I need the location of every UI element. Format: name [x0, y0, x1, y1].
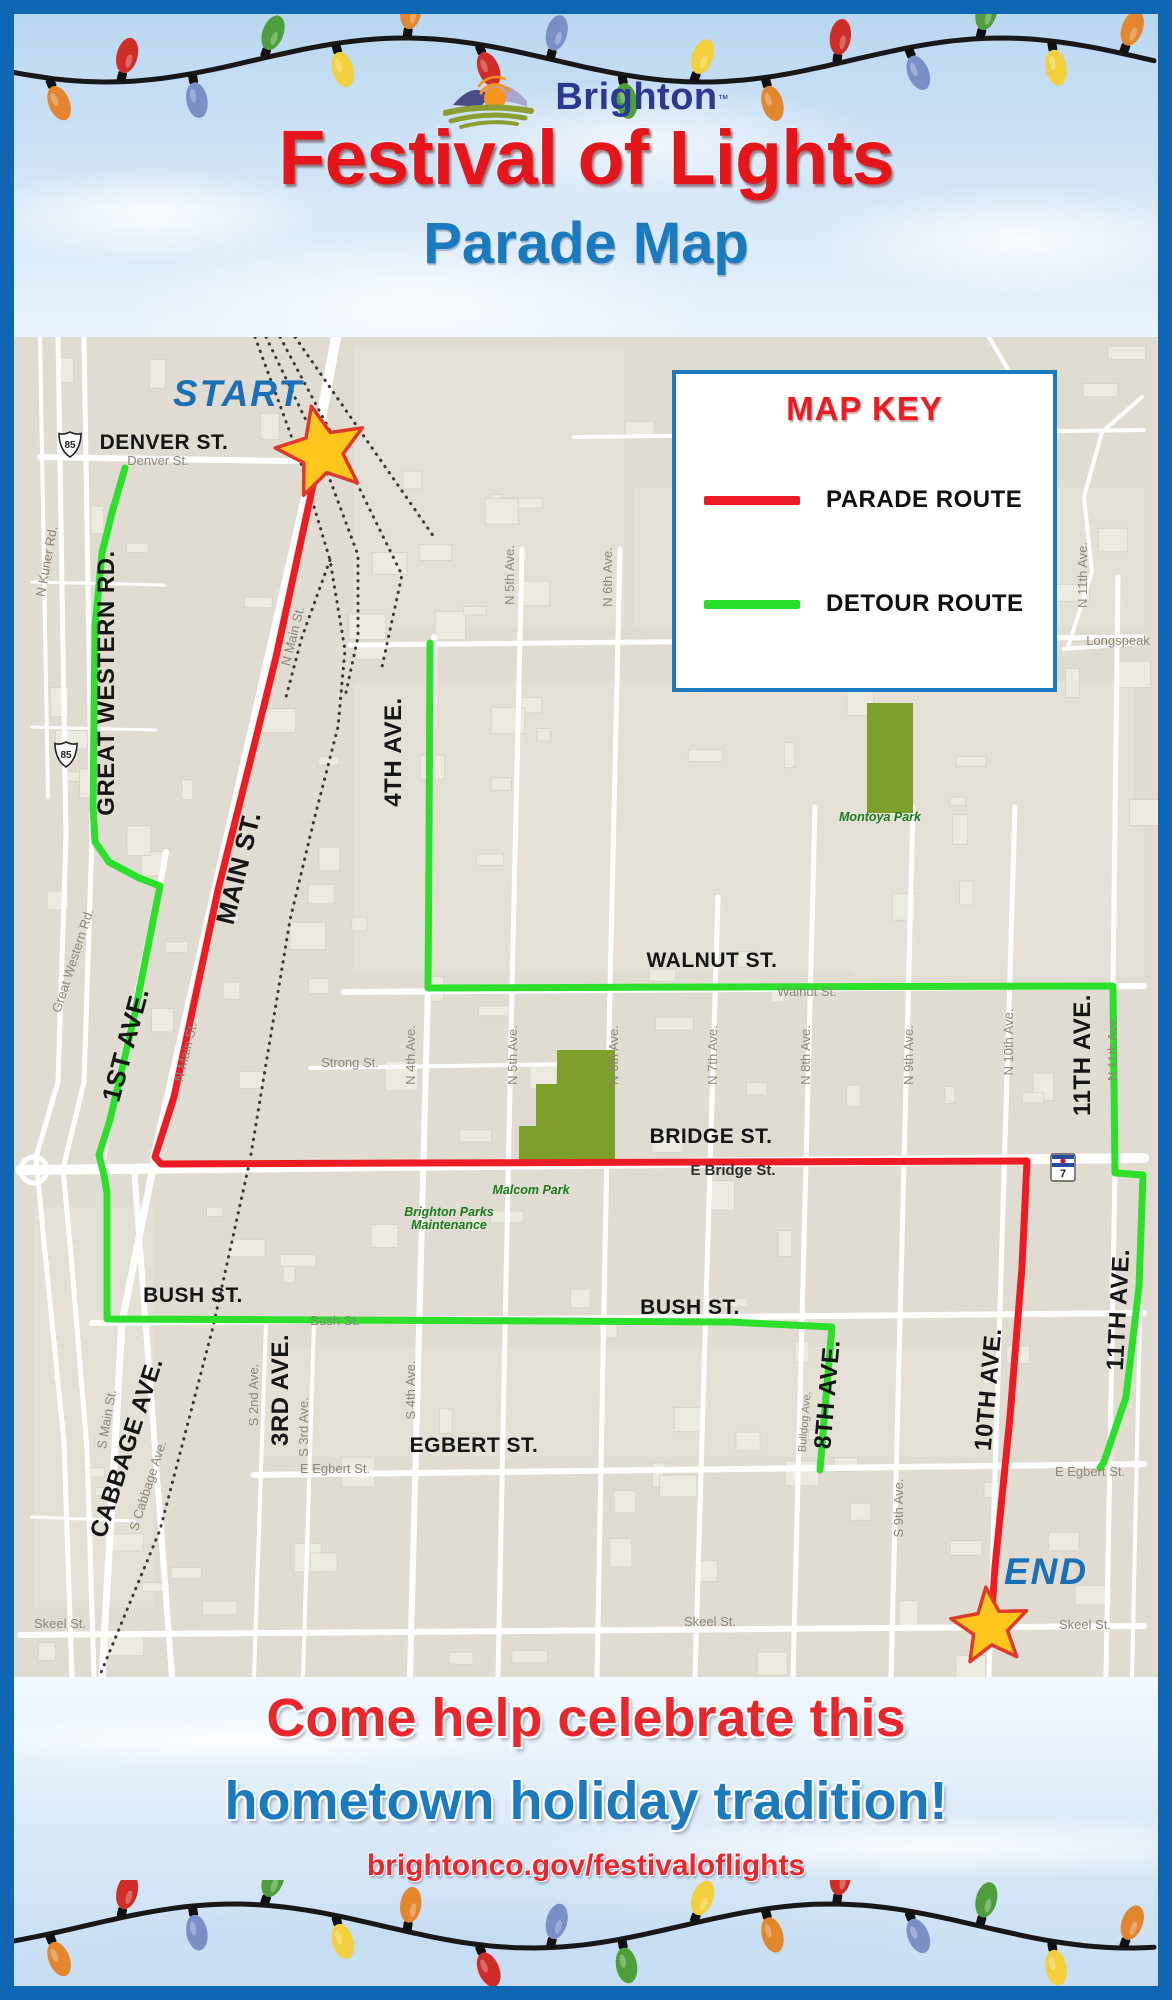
building	[950, 1541, 982, 1555]
building	[150, 360, 166, 389]
building	[625, 422, 654, 435]
street-label-small: N 5th Ave.	[505, 1025, 520, 1085]
building	[435, 611, 465, 640]
building	[459, 1130, 491, 1142]
brighton-logo-icon	[443, 65, 543, 129]
building	[953, 815, 968, 845]
key-swatch	[704, 600, 800, 609]
building	[126, 543, 148, 552]
map-key-title: MAP KEY	[676, 390, 1053, 428]
building	[464, 606, 486, 615]
map-key-rows: PARADE ROUTEDETOUR ROUTE	[676, 486, 1053, 618]
brand-trademark: ™	[718, 93, 729, 105]
building	[403, 471, 422, 489]
building	[38, 1643, 55, 1661]
building	[700, 1560, 717, 1581]
building	[614, 1491, 636, 1513]
building	[492, 778, 512, 791]
street-label-small: N 11th Ave.	[1105, 1015, 1120, 1081]
street-label-small: Walnut St.	[777, 984, 836, 999]
street-label-bold: BUSH ST.	[640, 1296, 740, 1319]
building	[1083, 384, 1118, 397]
building	[674, 1408, 703, 1432]
building	[207, 1207, 223, 1216]
building	[1108, 346, 1145, 359]
street-label-small: E Egbert St.	[1055, 1464, 1125, 1479]
street-label-small: N 9th Ave.	[901, 1025, 916, 1085]
building	[239, 1072, 263, 1089]
park-label: Brighton Parks	[404, 1205, 494, 1219]
building	[1115, 661, 1151, 687]
svg-text:85: 85	[60, 750, 72, 761]
building	[660, 1475, 697, 1497]
building	[308, 884, 334, 904]
building	[171, 1568, 202, 1579]
park-label: Montoya Park	[839, 810, 922, 824]
building	[778, 1231, 791, 1257]
building	[537, 729, 551, 741]
building	[106, 1636, 143, 1656]
building	[784, 742, 794, 767]
street-label-bold: DENVER ST.	[100, 431, 229, 454]
building	[478, 1006, 509, 1016]
co-7-shield-icon: 7	[1051, 1154, 1075, 1181]
key-label: PARADE ROUTE	[826, 486, 1022, 514]
street-label-small: Skeel St.	[684, 1614, 736, 1629]
street-label-small: S 4th Ave.	[403, 1360, 418, 1419]
building	[485, 499, 518, 524]
street-label-bold: BRIDGE ST.	[650, 1125, 773, 1148]
street-label-bold: BUSH ST.	[143, 1284, 243, 1307]
building	[152, 1009, 174, 1033]
building	[1022, 1092, 1043, 1103]
building	[419, 544, 452, 560]
building	[1098, 528, 1127, 552]
building	[111, 1534, 143, 1551]
street-label-small: S 2nd Ave.	[246, 1364, 261, 1427]
building	[945, 1087, 955, 1104]
street-label-small: N 6th Ave.	[600, 547, 615, 607]
street-label-small: Denver St.	[127, 453, 188, 468]
building	[290, 922, 325, 949]
street-label-small: Skeel St.	[1059, 1617, 1111, 1632]
park-label: Maintenance	[411, 1218, 487, 1232]
street-label-small: N 6th Ave.	[606, 1025, 621, 1085]
street-label-small: Strong St.	[321, 1055, 379, 1070]
building	[1066, 669, 1080, 698]
street-label-small: N 8th Ave.	[798, 1025, 813, 1085]
building	[610, 1539, 632, 1567]
building	[950, 797, 966, 806]
map-key-item-parade-route: PARADE ROUTE	[704, 486, 1053, 514]
key-swatch	[704, 496, 800, 505]
street-label-small: Bush St.	[310, 1313, 359, 1328]
building	[165, 942, 188, 952]
building	[960, 881, 973, 905]
street-label-bold: 3RD AVE.	[267, 1334, 294, 1446]
street-label-bold: WALNUT ST.	[647, 949, 778, 972]
street-label-bold: GREAT WESTERN RD.	[93, 550, 120, 815]
building	[203, 1601, 237, 1615]
street-label-small: Skeel St.	[34, 1616, 86, 1631]
building	[60, 358, 74, 383]
building	[309, 979, 329, 994]
city-block	[264, 1347, 994, 1457]
building	[349, 614, 386, 639]
end-label: END	[1004, 1551, 1088, 1592]
building	[757, 1652, 787, 1675]
building	[450, 1652, 474, 1664]
building	[261, 413, 279, 439]
building	[571, 1289, 591, 1308]
street-label-small: N 10th Ave.	[1001, 1009, 1016, 1076]
building	[223, 982, 240, 999]
map-key: MAP KEY PARADE ROUTEDETOUR ROUTE	[672, 370, 1057, 692]
building	[1130, 800, 1159, 826]
building	[371, 1225, 398, 1248]
footer-snow: Come help celebrate this hometown holida…	[14, 1677, 1158, 1986]
footer-line2: hometown holiday tradition!	[14, 1774, 1158, 1828]
building	[311, 1553, 338, 1572]
svg-text:85: 85	[64, 440, 76, 451]
street-label-bold: EGBERT ST.	[410, 1434, 539, 1457]
building	[688, 750, 723, 762]
street-label-small: E Egbert St.	[300, 1461, 370, 1476]
street-label-small: N 7th Ave.	[705, 1025, 720, 1085]
street-label-small: N 11th Ave.	[1075, 542, 1090, 608]
building	[512, 1651, 548, 1663]
street-label-small: S 3rd Ave.	[296, 1397, 311, 1457]
city-block	[354, 347, 624, 627]
building	[356, 647, 387, 660]
building	[319, 847, 340, 871]
building	[851, 1503, 871, 1520]
map-area: 85857Denver St.N Kuner Rd.N Main St.N 5t…	[14, 337, 1158, 1677]
park-label: Malcom Park	[492, 1183, 570, 1197]
building	[655, 1017, 693, 1030]
building	[747, 1083, 767, 1095]
building	[711, 1181, 734, 1210]
festival-of-lights-parade-map-poster: Brighton™ Festival of Lights Parade Map …	[0, 0, 1172, 2000]
building	[373, 553, 408, 575]
map-key-item-detour-route: DETOUR ROUTE	[704, 590, 1053, 618]
building	[440, 1409, 453, 1434]
footer-url: brightonco.gov/festivaloflights	[14, 1851, 1158, 1881]
building	[91, 506, 104, 534]
street-label-small: Longspeak	[1086, 633, 1150, 648]
key-label: DETOUR ROUTE	[826, 590, 1024, 618]
building	[736, 1432, 760, 1451]
street-label-small: N 5th Ave.	[502, 545, 517, 605]
building	[182, 780, 193, 800]
svg-text:7: 7	[1060, 1168, 1066, 1180]
building	[899, 1601, 918, 1629]
building	[1049, 1532, 1080, 1551]
brand-name: Brighton	[555, 76, 717, 118]
street-label-small: N 4th Ave.	[403, 1025, 418, 1085]
brighton-logo: Brighton™	[14, 62, 1158, 132]
street-label-bold: 11TH AVE.	[1069, 994, 1096, 1116]
street-label-bold: 4TH AVE.	[380, 697, 407, 806]
building	[280, 1254, 316, 1266]
building	[352, 917, 367, 931]
building	[244, 597, 272, 608]
street-label-small: E Bridge St.	[690, 1162, 775, 1179]
building	[956, 756, 986, 766]
start-label: START	[173, 373, 304, 414]
poster-subtitle: Parade Map	[14, 210, 1158, 277]
building	[229, 1239, 265, 1257]
montoya-park	[867, 703, 913, 813]
building	[127, 826, 151, 856]
building	[477, 854, 504, 865]
street-label-small: S 9th Ave.	[891, 1478, 906, 1537]
building	[785, 1461, 819, 1486]
building	[847, 1085, 861, 1107]
footer-line1: Come help celebrate this	[14, 1691, 1158, 1745]
